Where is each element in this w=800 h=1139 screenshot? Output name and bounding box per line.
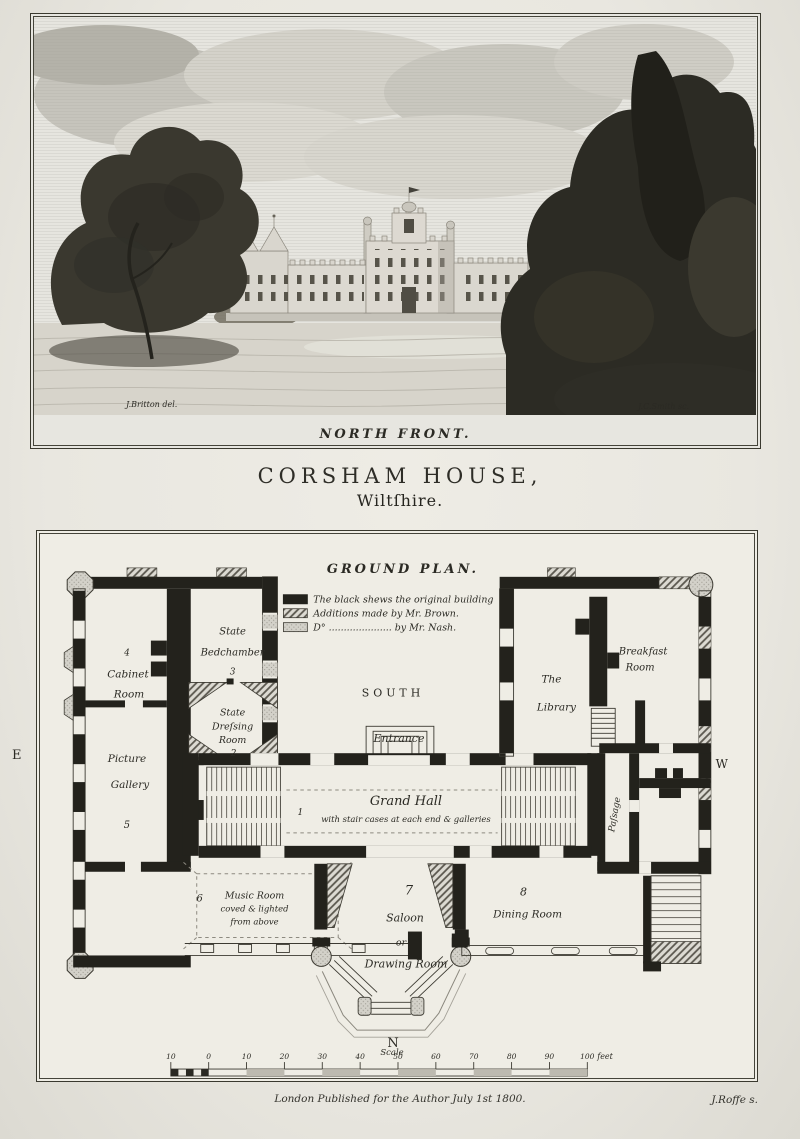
label-state-bedchamber-1: State: [219, 627, 246, 638]
label-state-bedchamber-2: Bedchamber: [200, 648, 266, 659]
label-cabinet-room: Cabinet: [107, 668, 149, 680]
imprint-line: London Published for the Author July 1st…: [0, 1093, 800, 1105]
label-picture-gallery-1: Picture: [107, 753, 146, 765]
scale-tick-8: 70: [469, 1052, 479, 1061]
scale-unit: feet: [596, 1052, 613, 1061]
engraving-caption: NORTH FRONT.: [31, 427, 760, 442]
plate-subtitle: Wiltſhire.: [0, 491, 800, 510]
label-dining-room: Dining Room: [492, 909, 562, 921]
legend-label-brown: Additions made by Mr. Brown.: [312, 609, 459, 620]
scale-tick-7: 60: [431, 1052, 441, 1061]
ground-plan-drawing: The black shews the original building Ad…: [37, 531, 757, 1081]
publication-line: London Published for the Author July 1st…: [274, 1093, 525, 1105]
label-grand-hall-number: 1: [297, 808, 303, 818]
plate-title: CORSHAM HOUSE,: [0, 464, 800, 488]
label-state-bedchamber-number: 3: [230, 667, 236, 677]
engraver-credit: J.C.Smith sc.: [636, 402, 689, 411]
plan-engraver-credit: J.Roffe s.: [711, 1094, 758, 1106]
label-picture-gallery-number: 5: [124, 820, 130, 831]
label-passage: Paſsage: [607, 796, 623, 833]
label-picture-gallery-2: Gallery: [111, 779, 150, 791]
label-grand-hall: Grand Hall: [370, 794, 442, 809]
south-rooms-walls: [183, 862, 701, 1037]
label-saloon-number: 7: [405, 884, 414, 899]
label-cabinet-number: 4: [123, 649, 130, 659]
scale-tick-10: 90: [545, 1052, 555, 1061]
label-state-dressing-number: 2: [230, 749, 237, 759]
scale-tick-9: 80: [507, 1052, 517, 1061]
label-saloon: Saloon: [386, 912, 424, 925]
legend-label-original: The black shews the original building: [313, 595, 493, 606]
north-front-engraving: J.Britton del. J.C.Smith sc.: [34, 17, 756, 415]
legend-label-nash: D° ..................... by Mr. Nash.: [312, 623, 456, 634]
label-drawing-room: Drawing Room: [364, 957, 448, 970]
scale-tick-2: 10: [242, 1052, 252, 1061]
scale-tick-5: 40: [354, 1052, 365, 1061]
label-dining-room-number: 8: [520, 886, 527, 899]
legend-swatch-brown: [283, 609, 307, 618]
label-state-dressing-3: Room: [218, 735, 247, 746]
delineator-credit: J.Britton del.: [124, 400, 177, 409]
plan-legend: The black shews the original building Ad…: [283, 595, 493, 634]
label-music-room-note-2: from above: [229, 917, 278, 927]
label-breakfast-room-2: Room: [625, 662, 655, 673]
label-library-2: Library: [536, 701, 577, 713]
legend-swatch-nash: [283, 623, 307, 632]
label-state-dressing-2: Dreſsing: [211, 721, 253, 732]
label-library-1: The: [541, 673, 561, 685]
legend-swatch-original: [283, 595, 307, 604]
label-music-room: Music Room: [224, 891, 284, 902]
plate-page: J.Britton del. J.C.Smith sc. NORTH FRONT…: [0, 0, 800, 1139]
label-music-room-note-1: coved & lighted: [221, 904, 290, 914]
compass-west: W: [716, 757, 729, 771]
label-state-dressing-1: State: [220, 707, 246, 718]
label-cabinet-room-2: Room: [113, 688, 144, 700]
scale-tick-3: 20: [279, 1052, 290, 1061]
label-music-room-number: 6: [197, 894, 203, 905]
label-saloon-or: or: [396, 937, 407, 948]
plate-title-block: CORSHAM HOUSE, Wiltſhire.: [0, 464, 800, 510]
label-entrance: Entrance: [373, 732, 425, 745]
plan-heading: GROUND PLAN.: [327, 562, 479, 577]
scale-tick-4: 30: [318, 1052, 328, 1061]
scale-tick-1: 0: [206, 1052, 211, 1061]
north-front-engraving-plate: J.Britton del. J.C.Smith sc. NORTH FRONT…: [30, 13, 761, 449]
compass-east: E: [12, 748, 22, 763]
label-grand-hall-note: with stair cases at each end & galleries: [321, 814, 491, 824]
label-breakfast-room-1: Breakfast: [618, 647, 669, 658]
scale-tick-11: 100: [580, 1052, 595, 1061]
scale-label: Scale: [380, 1047, 403, 1057]
scale-tick-0: 10: [166, 1052, 176, 1061]
ground-plan-plate: The black shews the original building Ad…: [36, 530, 758, 1082]
compass-south: SOUTH: [362, 686, 424, 699]
